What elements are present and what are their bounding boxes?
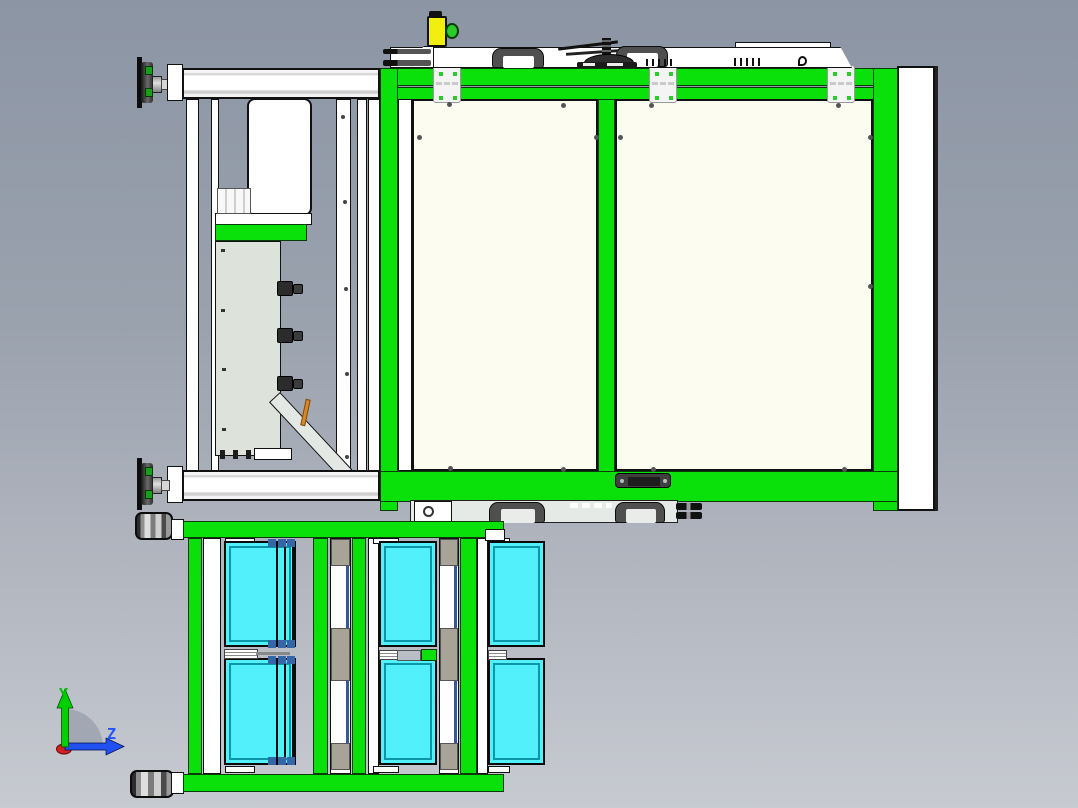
bracket-dash-line <box>652 82 674 85</box>
cart-green-post-2 <box>313 538 328 774</box>
y-axis-label: Y <box>59 685 68 703</box>
tray-slot-rails <box>270 543 294 645</box>
panel-left-screws <box>447 102 452 107</box>
frame-connector-bracket-1 <box>433 65 461 103</box>
elevator-side-panel <box>215 241 281 456</box>
foot-green-pad-bottom-a <box>145 467 153 476</box>
green-shelf-bar <box>215 224 307 241</box>
left-post-screws <box>341 115 345 119</box>
rail-block <box>440 743 458 770</box>
cart-white-post-2 <box>477 538 488 774</box>
tray-col2-top <box>379 541 437 647</box>
rail-block <box>440 628 458 681</box>
frame-connector-bracket-3 <box>827 65 855 103</box>
handle-opening <box>626 509 656 523</box>
tray-inner-line <box>493 546 540 642</box>
cart-green-post-4 <box>460 538 477 774</box>
rail-blue-line <box>454 681 457 743</box>
tray-rail-blue-squares <box>268 539 276 547</box>
panel-right-screws <box>649 103 654 108</box>
frame-panel-left <box>412 99 598 471</box>
tray-inner-line <box>384 546 432 642</box>
rail-blue-line <box>346 566 349 628</box>
caster-wheel-bottom <box>130 770 174 798</box>
mid-slide-bar <box>397 650 421 661</box>
latch-screw-right <box>663 479 667 483</box>
tray-hanger <box>225 766 255 773</box>
cart-white-post-1 <box>203 538 221 774</box>
adjust-knob-3 <box>277 376 293 391</box>
frame-inner-strip <box>398 99 412 471</box>
tray-hanger <box>488 766 510 773</box>
left-post-e <box>368 99 380 471</box>
rail-block <box>331 743 350 770</box>
frame-connector-bracket-2 <box>649 65 677 103</box>
sensor-green-knob <box>445 23 459 39</box>
platform-tick-marks-1 <box>646 59 672 66</box>
guide-rod-2 <box>383 60 431 66</box>
frame-middle-post <box>598 99 615 472</box>
platform-top-strip <box>735 42 831 48</box>
cart-green-post-3 <box>352 538 366 774</box>
view-orientation-triad[interactable]: Y Z <box>40 682 130 768</box>
bracket-dash-line <box>830 82 852 85</box>
tray-col1-top <box>224 541 296 647</box>
cart-bottom-bar <box>183 774 504 792</box>
bracket-green-dots <box>833 72 837 76</box>
carry-handle-bottom-right <box>615 502 665 523</box>
sensor-cap <box>429 11 442 17</box>
pneumatic-cylinder-top <box>182 68 380 99</box>
tray-col2-bottom <box>379 658 437 765</box>
cart-rail-column-2 <box>439 538 459 774</box>
tray-col3-top <box>488 541 545 647</box>
adjust-knob-2-tip <box>293 331 303 341</box>
left-post-a <box>186 99 199 471</box>
small-motor <box>217 188 251 214</box>
tray-slot-rails <box>270 660 294 763</box>
carry-handle-bottom-left <box>489 502 545 523</box>
tray-col1-bottom <box>224 658 296 765</box>
rail-block <box>331 628 350 681</box>
cart-rail-column-1 <box>330 538 351 774</box>
hose-connector-2 <box>676 512 702 519</box>
cylinder-cap-top <box>167 64 183 101</box>
frame-left-post <box>380 68 398 511</box>
mid-green-block <box>421 649 437 661</box>
latch-screw-left <box>620 479 624 483</box>
adjust-knob-1 <box>277 281 293 296</box>
foot-rod-bottom <box>161 480 170 491</box>
cart-green-post-1 <box>188 538 202 774</box>
bracket-green-dots <box>439 72 443 76</box>
caster-wheel-top <box>135 512 173 540</box>
pneumatic-cylinder-bottom <box>182 470 380 501</box>
tray-inner-line <box>493 663 540 760</box>
rail-block <box>440 539 458 566</box>
side-panel-screw-marks <box>221 249 225 252</box>
adjust-knob-2 <box>277 328 293 343</box>
left-post-d <box>357 99 367 471</box>
right-side-panel <box>897 66 935 511</box>
triad-arc <box>65 709 103 747</box>
bracket-ring <box>423 506 434 517</box>
conveyor-label-dashes <box>570 503 612 508</box>
rail-blue-line <box>454 566 457 628</box>
hose-connector-1 <box>676 503 702 510</box>
latch-slot <box>615 473 671 488</box>
left-post-c <box>336 99 351 471</box>
cart-top-bar <box>183 521 504 538</box>
handle-opening <box>503 56 534 68</box>
tray-inner-line <box>384 663 432 760</box>
tray-hanger <box>373 766 399 773</box>
gripper-post <box>602 38 611 55</box>
rail-block <box>331 539 350 566</box>
cart-white-strip-2 <box>368 538 379 774</box>
conveyor-cart-bracket <box>485 529 505 541</box>
adjust-knob-1-tip <box>293 284 303 294</box>
cad-viewport[interactable]: Y Z <box>0 0 1078 808</box>
panel-foot-bracket <box>254 448 292 460</box>
carry-handle-top-left <box>492 48 544 68</box>
tray-col3-bottom <box>488 658 545 765</box>
foot-green-pad-top-a <box>145 66 153 75</box>
handle-opening <box>501 509 535 523</box>
gripper-base-slot-a <box>583 63 595 66</box>
sensor-body-yellow <box>427 16 447 47</box>
platform-tick-marks-2 <box>734 58 764 66</box>
z-axis-label: Z <box>107 725 116 743</box>
frame-right-post <box>873 68 898 511</box>
platform-small-fitting <box>798 56 807 66</box>
gripper-base <box>577 62 637 68</box>
frame-panel-right <box>615 99 873 471</box>
mid-slide-rod <box>256 652 290 655</box>
conveyor-left-bracket <box>414 501 452 522</box>
mid-slide-plates-2 <box>379 650 398 660</box>
rail-blue-line <box>346 681 349 743</box>
adjust-knob-3-tip <box>293 379 303 389</box>
gripper-base-slot-b <box>607 63 623 66</box>
mid-slide-plates-1 <box>224 649 258 659</box>
latch-slot-inner <box>628 477 660 486</box>
electrical-enclosure <box>247 98 312 216</box>
mid-slide-plates-3 <box>488 650 507 660</box>
guide-rod-1 <box>383 49 431 54</box>
bracket-green-dots <box>655 72 659 76</box>
bracket-dash-line <box>436 82 458 85</box>
orange-spacer <box>300 399 311 426</box>
